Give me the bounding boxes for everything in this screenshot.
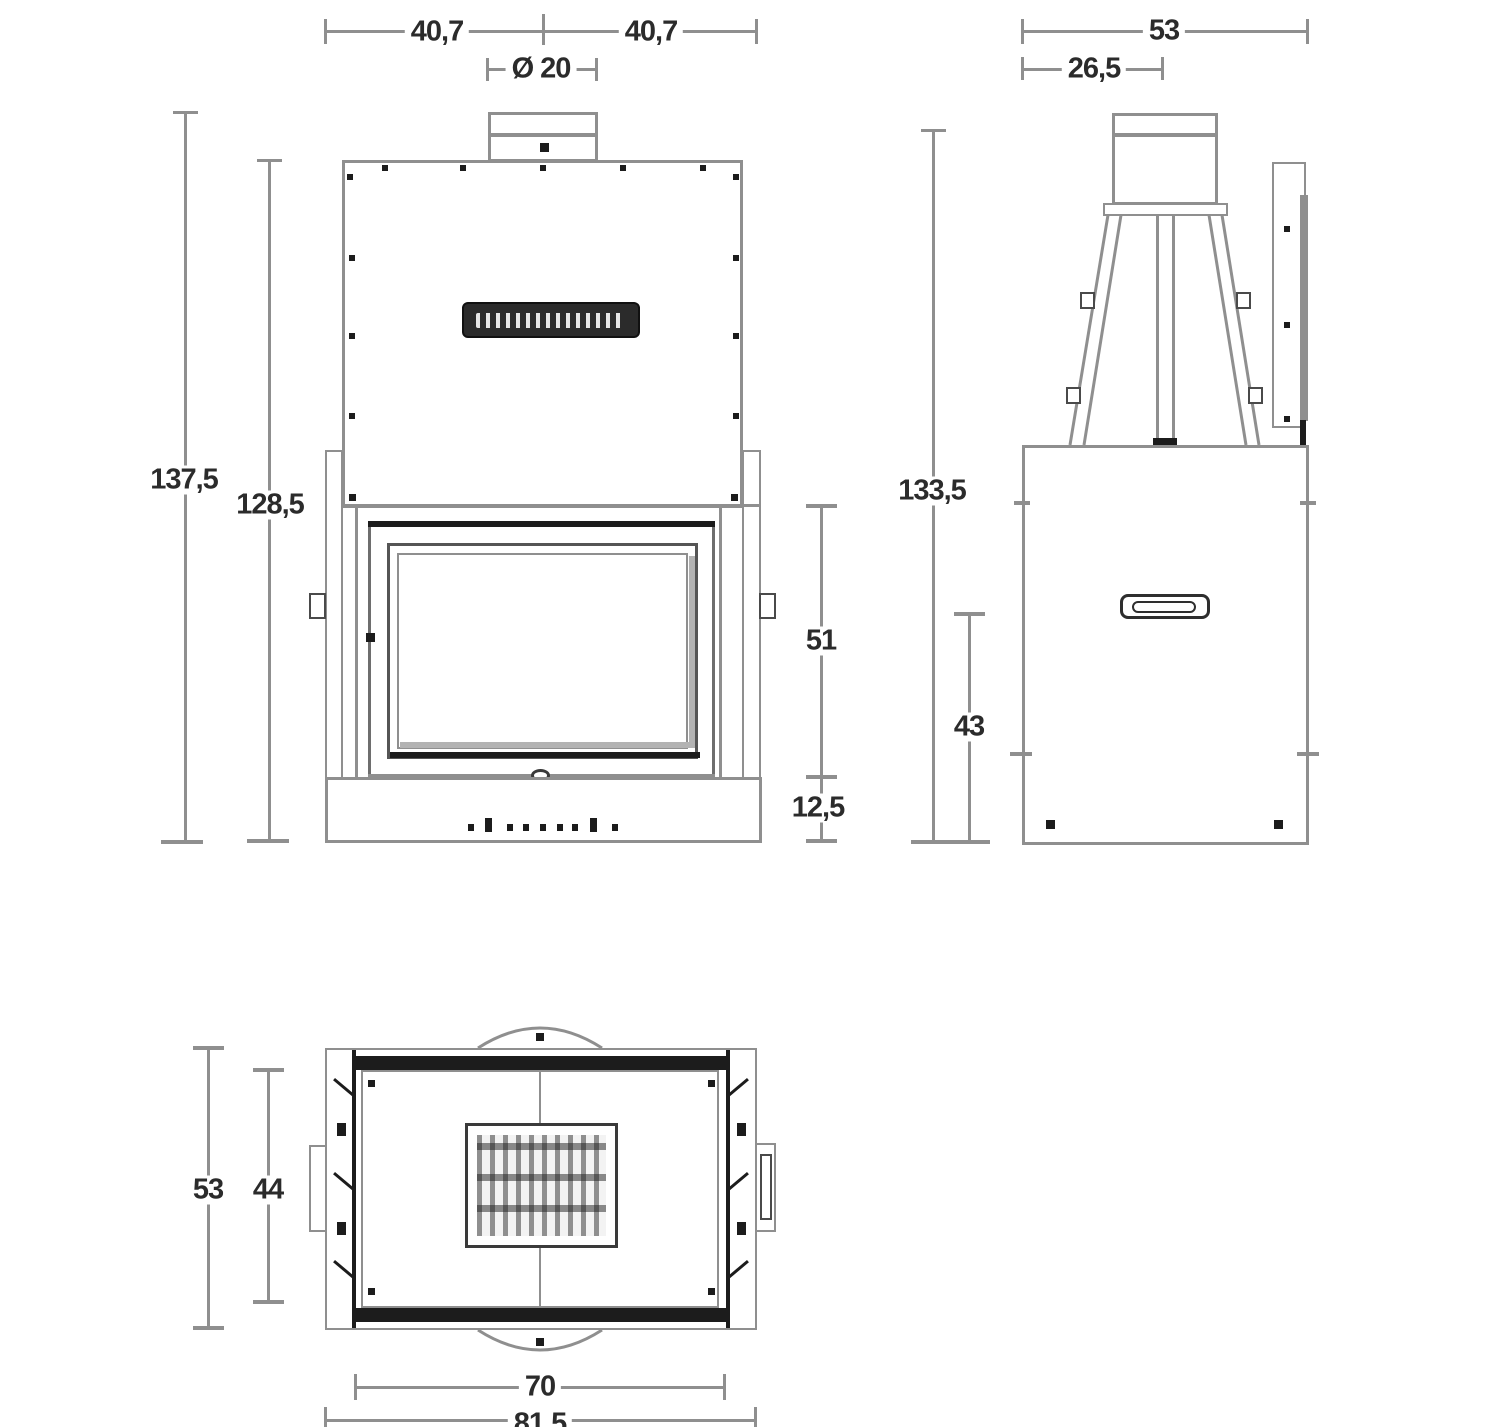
side-flue-collar-band [1114, 133, 1216, 137]
side-body-tick-left-upper [1014, 501, 1030, 505]
front-door-frame-top-bar [368, 521, 715, 527]
dim-side-body-height-label: 43 [948, 713, 990, 742]
top-flue-center-mark-rear [536, 1338, 544, 1346]
top-air-grille [465, 1123, 618, 1248]
front-door-bottom-bar [390, 752, 700, 758]
side-back-panel-edge-band [1300, 195, 1308, 421]
technical-drawing-canvas: 40,7 40,7 Ø 20 137,5 128,5 [0, 0, 1500, 1427]
side-body-tick-left-lower [1010, 752, 1032, 756]
dim-top-inner-depth-label: 44 [247, 1176, 289, 1205]
side-handle-slot-inner [1132, 601, 1196, 613]
top-air-grille-slats [477, 1135, 606, 1236]
side-leg-bracket-upper-right [1236, 292, 1251, 309]
top-screw-rear-right [708, 1288, 715, 1295]
dim-side-flue-offset-label: 26,5 [1062, 55, 1126, 84]
side-back-panel-hole-3 [1284, 416, 1290, 422]
side-body-bolt-left [1046, 820, 1055, 829]
side-column-left-edge [1156, 215, 1159, 441]
top-flue-center-mark-front [536, 1033, 544, 1041]
top-screw-front-right [708, 1080, 715, 1087]
dim-top-overall-depth-label: 53 [187, 1176, 229, 1205]
front-left-column [355, 507, 358, 777]
front-firebox-top-edge [342, 504, 761, 507]
front-door-hinge [366, 633, 375, 642]
top-screw-rear-left [368, 1288, 375, 1295]
side-back-panel-hole-1 [1284, 226, 1290, 232]
dim-front-plinth-height-label: 12,5 [786, 794, 850, 823]
side-column-base [1153, 438, 1177, 445]
top-screw-front-left [368, 1080, 375, 1087]
side-leg-bracket-lower-right [1248, 387, 1263, 404]
dim-top-overall-width-label: 81,5 [508, 1410, 572, 1427]
dim-top-inner-width-label: 70 [519, 1373, 561, 1402]
front-flue-collar [488, 112, 598, 162]
side-body-bolt-right [1274, 820, 1283, 829]
brand-plate-icon [462, 302, 640, 338]
front-plinth [325, 777, 762, 843]
front-flue-collar-band [490, 133, 596, 137]
side-column-right-edge [1172, 215, 1175, 441]
side-leg-bracket-lower-left [1066, 387, 1081, 404]
dim-front-door-height-label: 51 [800, 627, 842, 656]
front-right-column [719, 507, 722, 777]
dim-side-overall-height-label: 133,5 [892, 477, 972, 506]
dim-side-overall-depth-label: 53 [1143, 17, 1185, 46]
front-right-mount-tab [759, 593, 776, 619]
top-left-latch [309, 1145, 327, 1232]
top-right-latch-inner [760, 1154, 772, 1220]
front-glass-shadow-right [689, 556, 695, 748]
brand-plate-lettering [476, 313, 626, 328]
dim-front-hood-height-label: 128,5 [230, 491, 310, 520]
dim-front-half-width-left-label: 40,7 [405, 18, 469, 47]
front-glass-shadow-bottom [400, 742, 690, 748]
dim-front-flue-diameter-label: Ø 20 [506, 55, 577, 84]
side-body-tick-right-lower [1297, 752, 1319, 756]
front-left-wing [325, 450, 343, 780]
side-back-panel-foot [1300, 420, 1306, 445]
front-glass-pane [397, 553, 688, 749]
side-back-panel-hole-2 [1284, 322, 1290, 328]
dim-front-half-width-right-label: 40,7 [619, 18, 683, 47]
front-flue-collar-screw [540, 143, 549, 152]
side-body [1022, 445, 1309, 845]
dim-front-overall-height-label: 137,5 [144, 466, 224, 495]
side-leg-bracket-upper-left [1080, 292, 1095, 309]
front-left-mount-tab [309, 593, 326, 619]
side-body-tick-right-upper [1300, 501, 1316, 505]
